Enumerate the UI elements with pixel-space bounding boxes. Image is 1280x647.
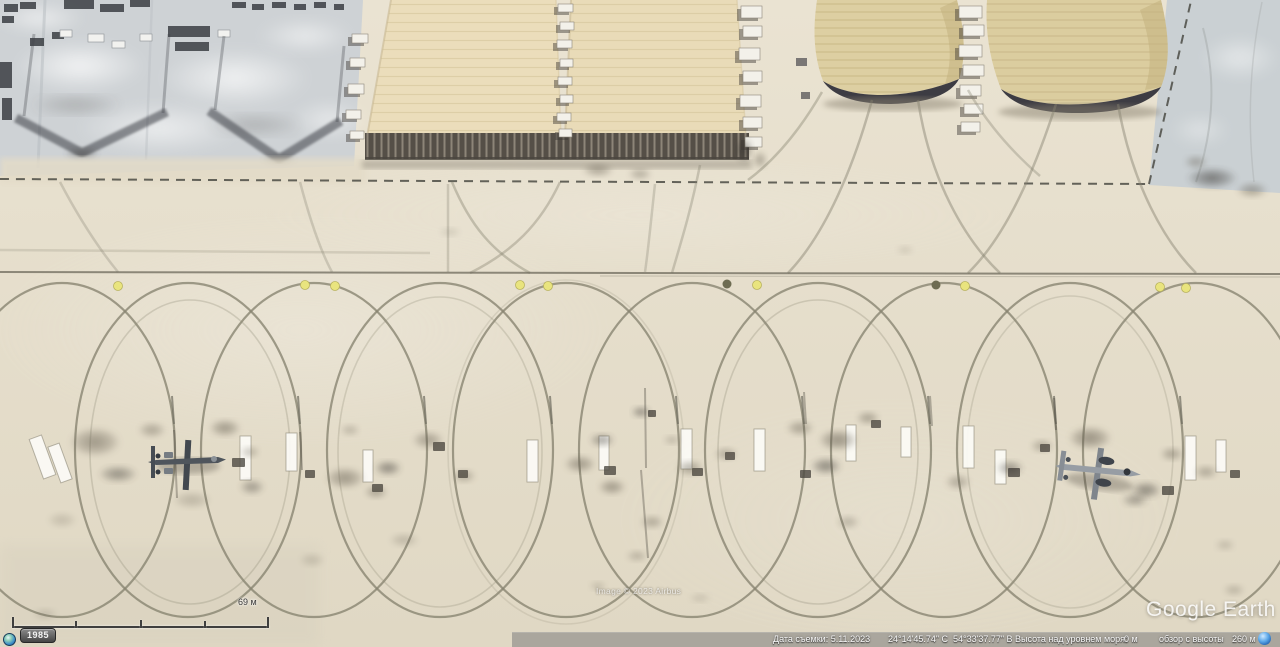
imagery-attribution: Image © 2023 Airbus (596, 586, 681, 596)
latitude-readout: 24°14'45.74" С (888, 632, 948, 647)
satellite-imagery[interactable] (0, 0, 1280, 647)
scale-bar-tick (140, 620, 142, 628)
clock-icon[interactable] (3, 633, 16, 646)
imagery-date: Дата съемки: 5.11.2023 (773, 632, 870, 647)
elevation-label: Высота над уровнем моря: (1015, 632, 1127, 647)
globe-icon (1258, 632, 1271, 645)
scale-bar-tick (267, 617, 269, 628)
scale-bar (12, 616, 269, 628)
elevation-value: 0 м (1124, 632, 1138, 647)
sunshade-hangar-east (563, 0, 749, 160)
concrete-zone-northeast (1149, 0, 1280, 193)
scale-bar-tick (12, 617, 14, 628)
scale-bar-tick (75, 621, 77, 628)
google-earth-watermark: Google Earth (1146, 598, 1276, 622)
scale-bar-label: 69 м (238, 597, 257, 607)
sunshade-hangar-west (365, 0, 563, 160)
google-earth-viewport[interactable]: Image © 2023 Airbus Google Earth 69 м 19… (0, 0, 1280, 647)
scale-bar-tick (204, 621, 206, 628)
longitude-readout: 54°33'37.77" В (953, 632, 1013, 647)
hangar-front-shadow (362, 160, 752, 169)
status-bar: Дата съемки: 5.11.2023 24°14'45.74" С 54… (512, 632, 1280, 647)
eye-altitude-value: 260 м (1232, 632, 1256, 647)
eye-altitude-label: обзор с высоты (1159, 632, 1224, 647)
historical-imagery-year-badge[interactable]: 1985 (20, 628, 56, 643)
